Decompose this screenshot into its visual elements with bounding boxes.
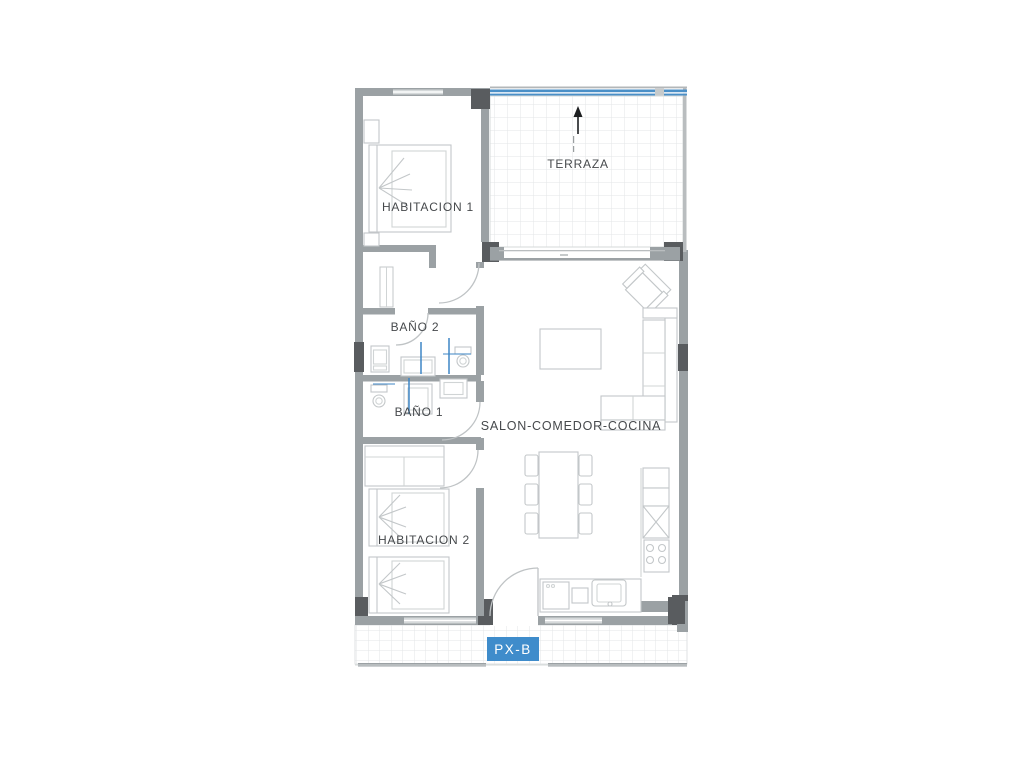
window-glass-line	[393, 91, 443, 92]
toilet-tank	[371, 385, 387, 392]
dining-table-icon	[539, 452, 578, 538]
door-arc	[442, 402, 480, 440]
burner-icon	[659, 557, 666, 564]
cabinet-icon	[572, 588, 588, 603]
wall-pillar	[668, 597, 685, 624]
chair-icon	[525, 513, 538, 534]
terrace-railing	[490, 87, 687, 96]
dining-set	[525, 452, 592, 538]
chair-icon	[579, 455, 592, 476]
wall-stub	[650, 247, 680, 258]
toilet-bowl-inner	[376, 398, 382, 404]
burner-icon	[659, 545, 666, 552]
door-arc	[440, 450, 478, 488]
floor-plan-drawing: HABITACION 1 TERRAZA BAÑO 2 BAÑO 1 SALON…	[0, 0, 1024, 768]
wall-segment	[363, 308, 395, 315]
room-label-bano-1: BAÑO 1	[395, 405, 444, 419]
wall-segment	[429, 252, 436, 268]
sliding-door-line	[499, 250, 665, 251]
bed-inner-line	[392, 561, 444, 609]
floor-plan-page: HABITACION 1 TERRAZA BAÑO 2 BAÑO 1 SALON…	[0, 0, 1024, 768]
burner-icon	[647, 557, 654, 564]
chair-icon	[525, 455, 538, 476]
dishwasher-knob	[552, 585, 555, 588]
window-glass-line	[545, 620, 602, 621]
bedroom1-furniture	[364, 120, 451, 246]
sliding-door-handle	[560, 254, 568, 256]
room-label-salon-comedor-cocina: SALON-COMEDOR-COCINA	[481, 419, 662, 433]
washbasin-bowl	[444, 383, 463, 395]
room-label-bano-2: BAÑO 2	[391, 320, 440, 334]
wall-stub	[490, 247, 504, 258]
terrace-side-rail	[683, 88, 687, 252]
sofa-arm	[643, 308, 677, 318]
entry-door-arc	[490, 568, 538, 616]
railing-edge-line	[490, 87, 687, 89]
wall-pillar	[678, 344, 688, 371]
micro-text-mark	[573, 136, 574, 143]
chair-icon	[579, 484, 592, 505]
wall-segment	[481, 96, 489, 242]
bedroom2-furniture	[365, 446, 449, 613]
hallway-closet	[380, 267, 393, 307]
room-label-habitacion-2: HABITACION 2	[378, 533, 470, 547]
tall-cabinet-icon	[643, 468, 669, 488]
tall-cabinet-icon	[643, 488, 669, 506]
wall-segment	[363, 437, 481, 444]
burner-icon	[647, 545, 654, 552]
terrace-tiled-floor	[490, 96, 683, 247]
unit-badge: PX-B	[487, 637, 539, 661]
dishwasher-knob	[547, 585, 550, 588]
nightstand-icon	[364, 120, 379, 143]
boundary-line	[355, 665, 687, 666]
room-label-habitacion-1: HABITACION 1	[382, 200, 474, 214]
wall-segment	[428, 308, 481, 315]
living-room-furniture	[540, 263, 677, 430]
micro-text-mark	[573, 146, 574, 152]
wall-segment	[679, 250, 688, 625]
wall-segment	[476, 488, 484, 616]
room-label-terraza: TERRAZA	[547, 157, 609, 171]
armchair-icon	[621, 263, 672, 314]
washbasin-bowl	[374, 350, 387, 364]
shower-tray-inner	[404, 360, 432, 373]
entry-opening	[490, 615, 538, 626]
wall-segment	[476, 381, 484, 402]
toilet-bowl-inner	[460, 358, 466, 364]
chair-icon	[579, 513, 592, 534]
coffee-table-icon	[540, 329, 601, 369]
sofa-back	[665, 316, 677, 422]
railing-post	[655, 89, 664, 96]
toilet-tank	[455, 347, 471, 354]
wall-pillar	[471, 89, 490, 109]
wall-pillar	[354, 342, 364, 372]
window-glass-line	[404, 620, 476, 621]
washbasin-base	[374, 366, 387, 370]
nightstand-icon	[364, 233, 379, 246]
unit-badge-label: PX-B	[494, 642, 532, 657]
chair-icon	[525, 484, 538, 505]
wall-segment	[476, 306, 484, 375]
terrace-bottom-wall	[490, 258, 680, 261]
wall-segment	[476, 262, 484, 268]
door-arc	[439, 263, 479, 303]
faucet-icon	[608, 602, 612, 606]
sink-basin	[597, 584, 621, 602]
